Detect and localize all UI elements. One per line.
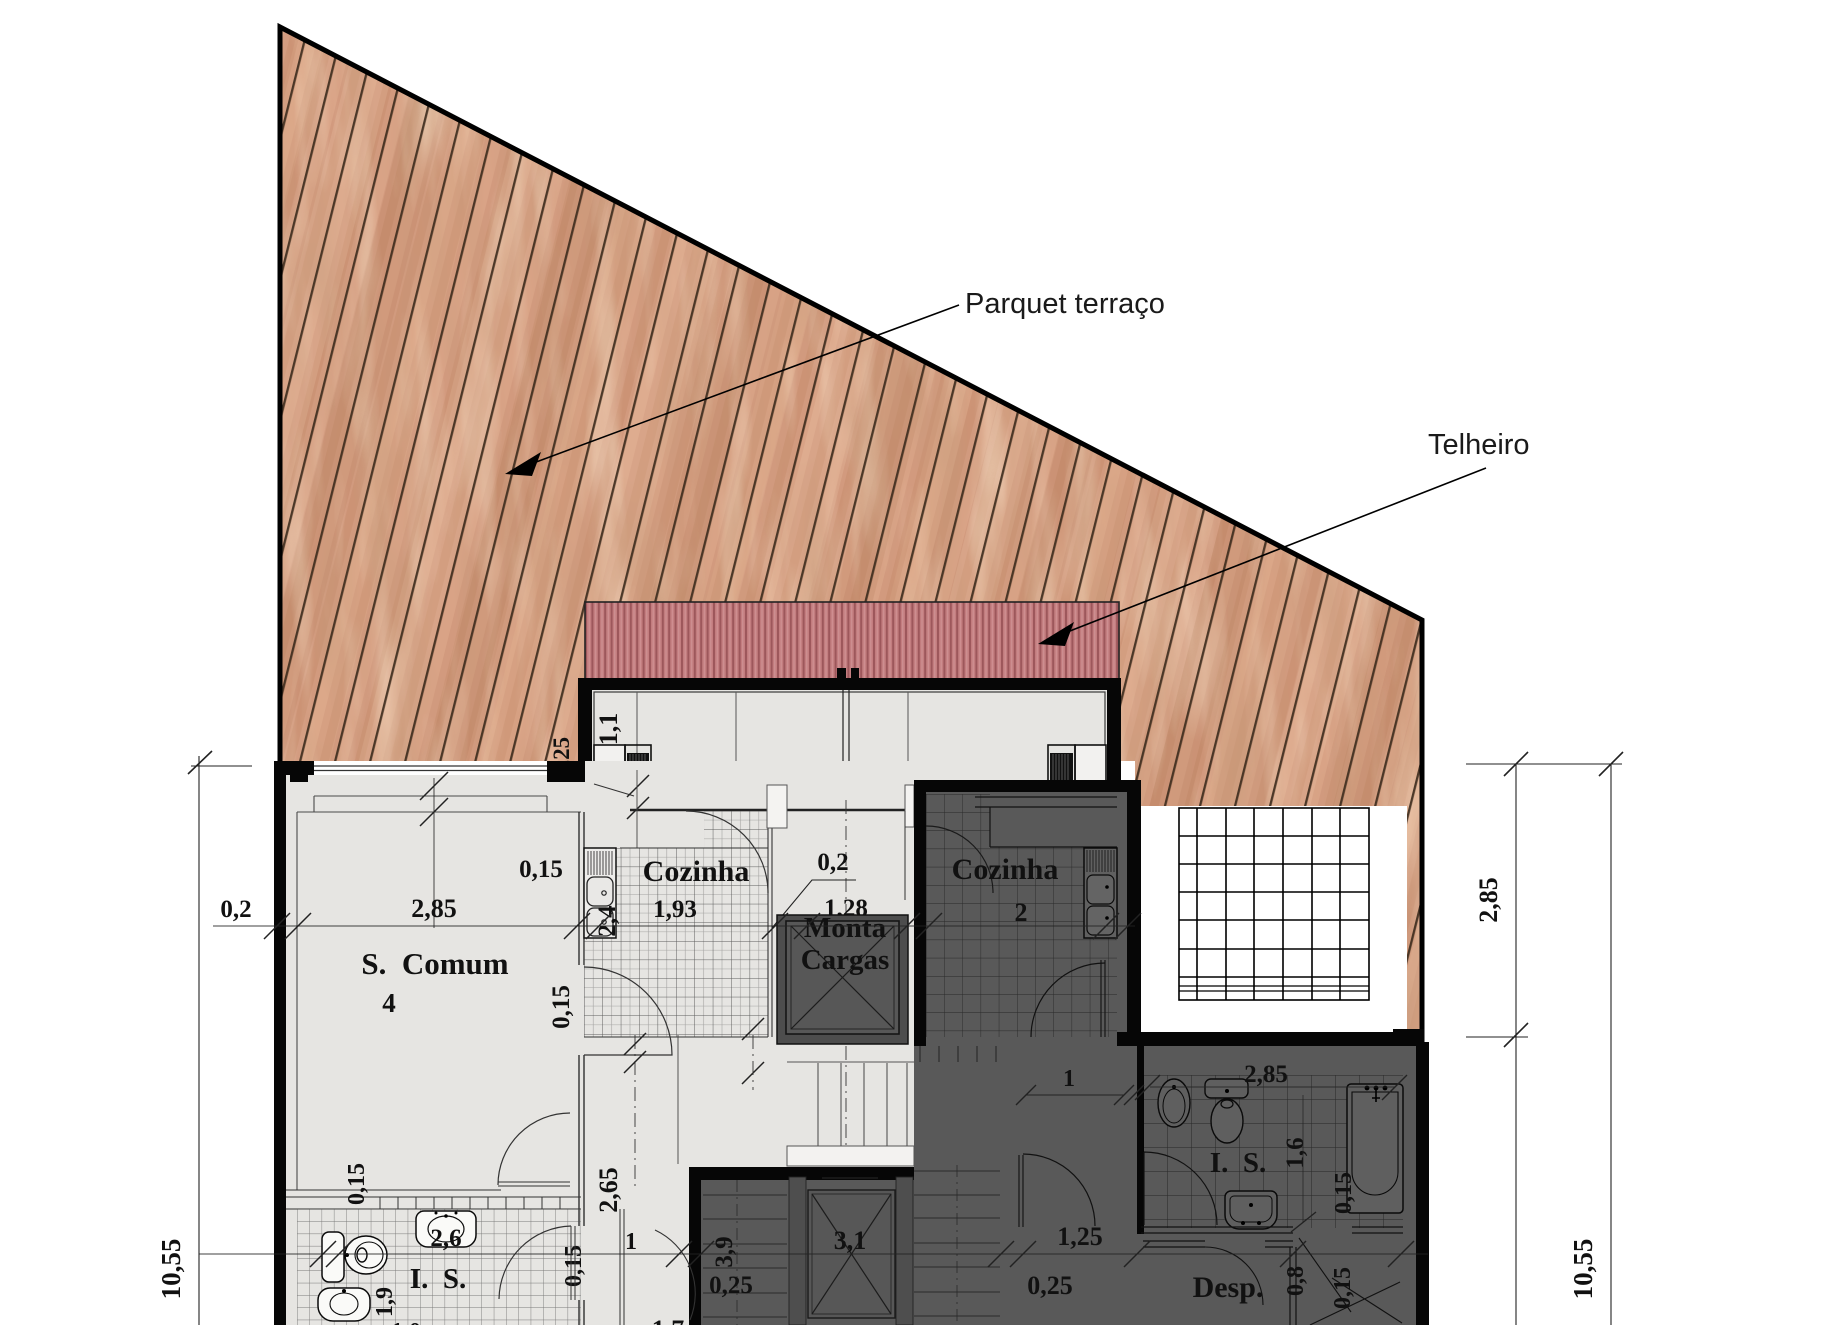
svg-text:0,15: 0,15	[344, 1163, 370, 1205]
svg-text:2,85: 2,85	[1474, 877, 1503, 923]
svg-text:Cargas: Cargas	[801, 944, 890, 976]
svg-text:2,85: 2,85	[411, 894, 457, 923]
svg-text:3,9: 3,9	[711, 1236, 738, 1267]
svg-text:1,9: 1,9	[372, 1287, 398, 1317]
svg-text:0,25: 0,25	[709, 1272, 753, 1299]
svg-text:0,25: 0,25	[1027, 1271, 1073, 1300]
svg-text:S. Comum: S. Comum	[361, 946, 508, 981]
svg-text:1,7: 1,7	[652, 1315, 685, 1325]
svg-text:0,15: 0,15	[1331, 1172, 1357, 1214]
svg-text:2,65: 2,65	[594, 1167, 623, 1213]
svg-text:10,55: 10,55	[156, 1239, 186, 1300]
svg-text:0,2: 0,2	[817, 849, 848, 876]
svg-text:3,1: 3,1	[834, 1226, 867, 1255]
svg-text:1,6: 1,6	[1282, 1137, 1309, 1168]
svg-text:2: 2	[1015, 898, 1028, 927]
svg-text:1,25: 1,25	[1057, 1222, 1103, 1251]
svg-text:2,4: 2,4	[594, 905, 621, 937]
svg-text:0,8: 0,8	[1283, 1266, 1309, 1296]
svg-text:1: 1	[625, 1229, 637, 1255]
svg-text:Telheiro: Telheiro	[1428, 429, 1530, 461]
svg-text:0,15: 0,15	[519, 856, 563, 883]
svg-text:0,15: 0,15	[548, 985, 575, 1029]
svg-text:1,0: 1,0	[391, 1319, 421, 1325]
svg-text:Cozinha: Cozinha	[952, 853, 1059, 886]
svg-text:10,55: 10,55	[1568, 1239, 1598, 1300]
svg-text:4: 4	[382, 988, 396, 1018]
svg-text:0,15: 0,15	[1330, 1267, 1356, 1309]
svg-text:Cozinha: Cozinha	[643, 855, 750, 888]
svg-text:2,85: 2,85	[1244, 1061, 1288, 1088]
svg-text:1,1: 1,1	[594, 713, 623, 746]
svg-text:I. S.: I. S.	[410, 1263, 466, 1295]
svg-text:1,93: 1,93	[653, 896, 697, 923]
svg-text:1: 1	[1063, 1066, 1075, 1092]
svg-text:2,6: 2,6	[430, 1225, 461, 1252]
svg-text:0,2: 0,2	[220, 896, 251, 923]
svg-text:Parquet terraço: Parquet terraço	[965, 288, 1165, 320]
svg-text:0,15: 0,15	[561, 1245, 587, 1287]
svg-text:I. S.: I. S.	[1210, 1147, 1266, 1179]
svg-text:Desp.: Desp.	[1193, 1271, 1264, 1304]
